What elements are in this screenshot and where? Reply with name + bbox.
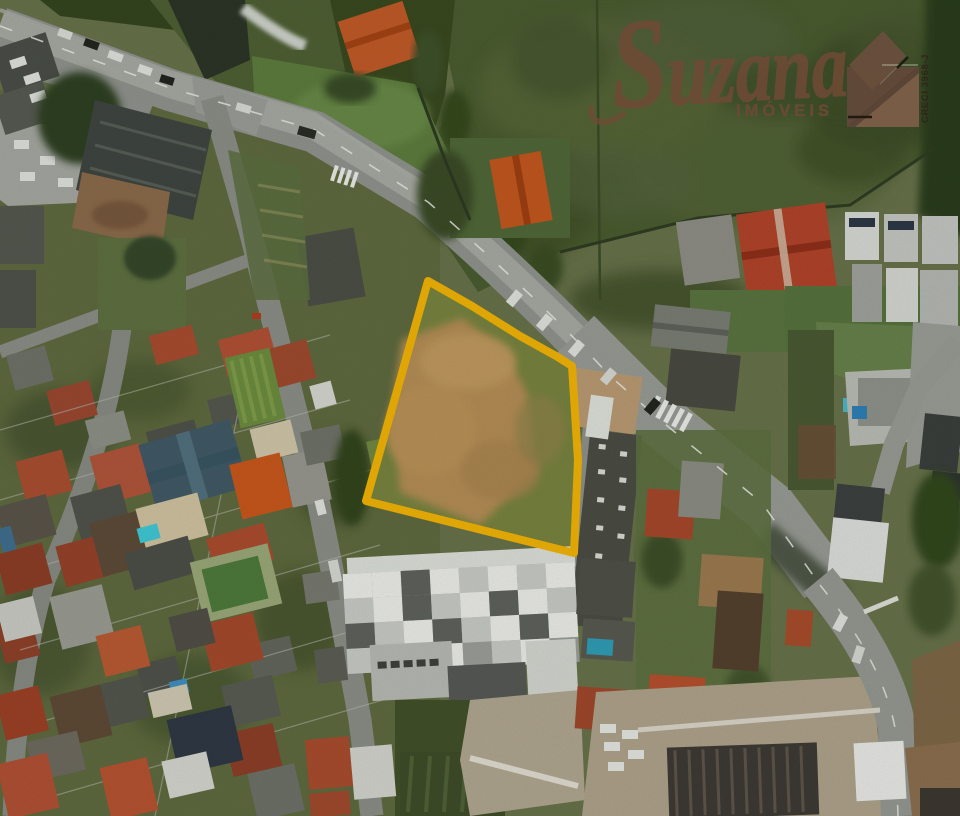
svg-text:IMÓVEIS: IMÓVEIS [736, 101, 833, 120]
svg-text:CRECI 3968-J: CRECI 3968-J [920, 54, 931, 123]
